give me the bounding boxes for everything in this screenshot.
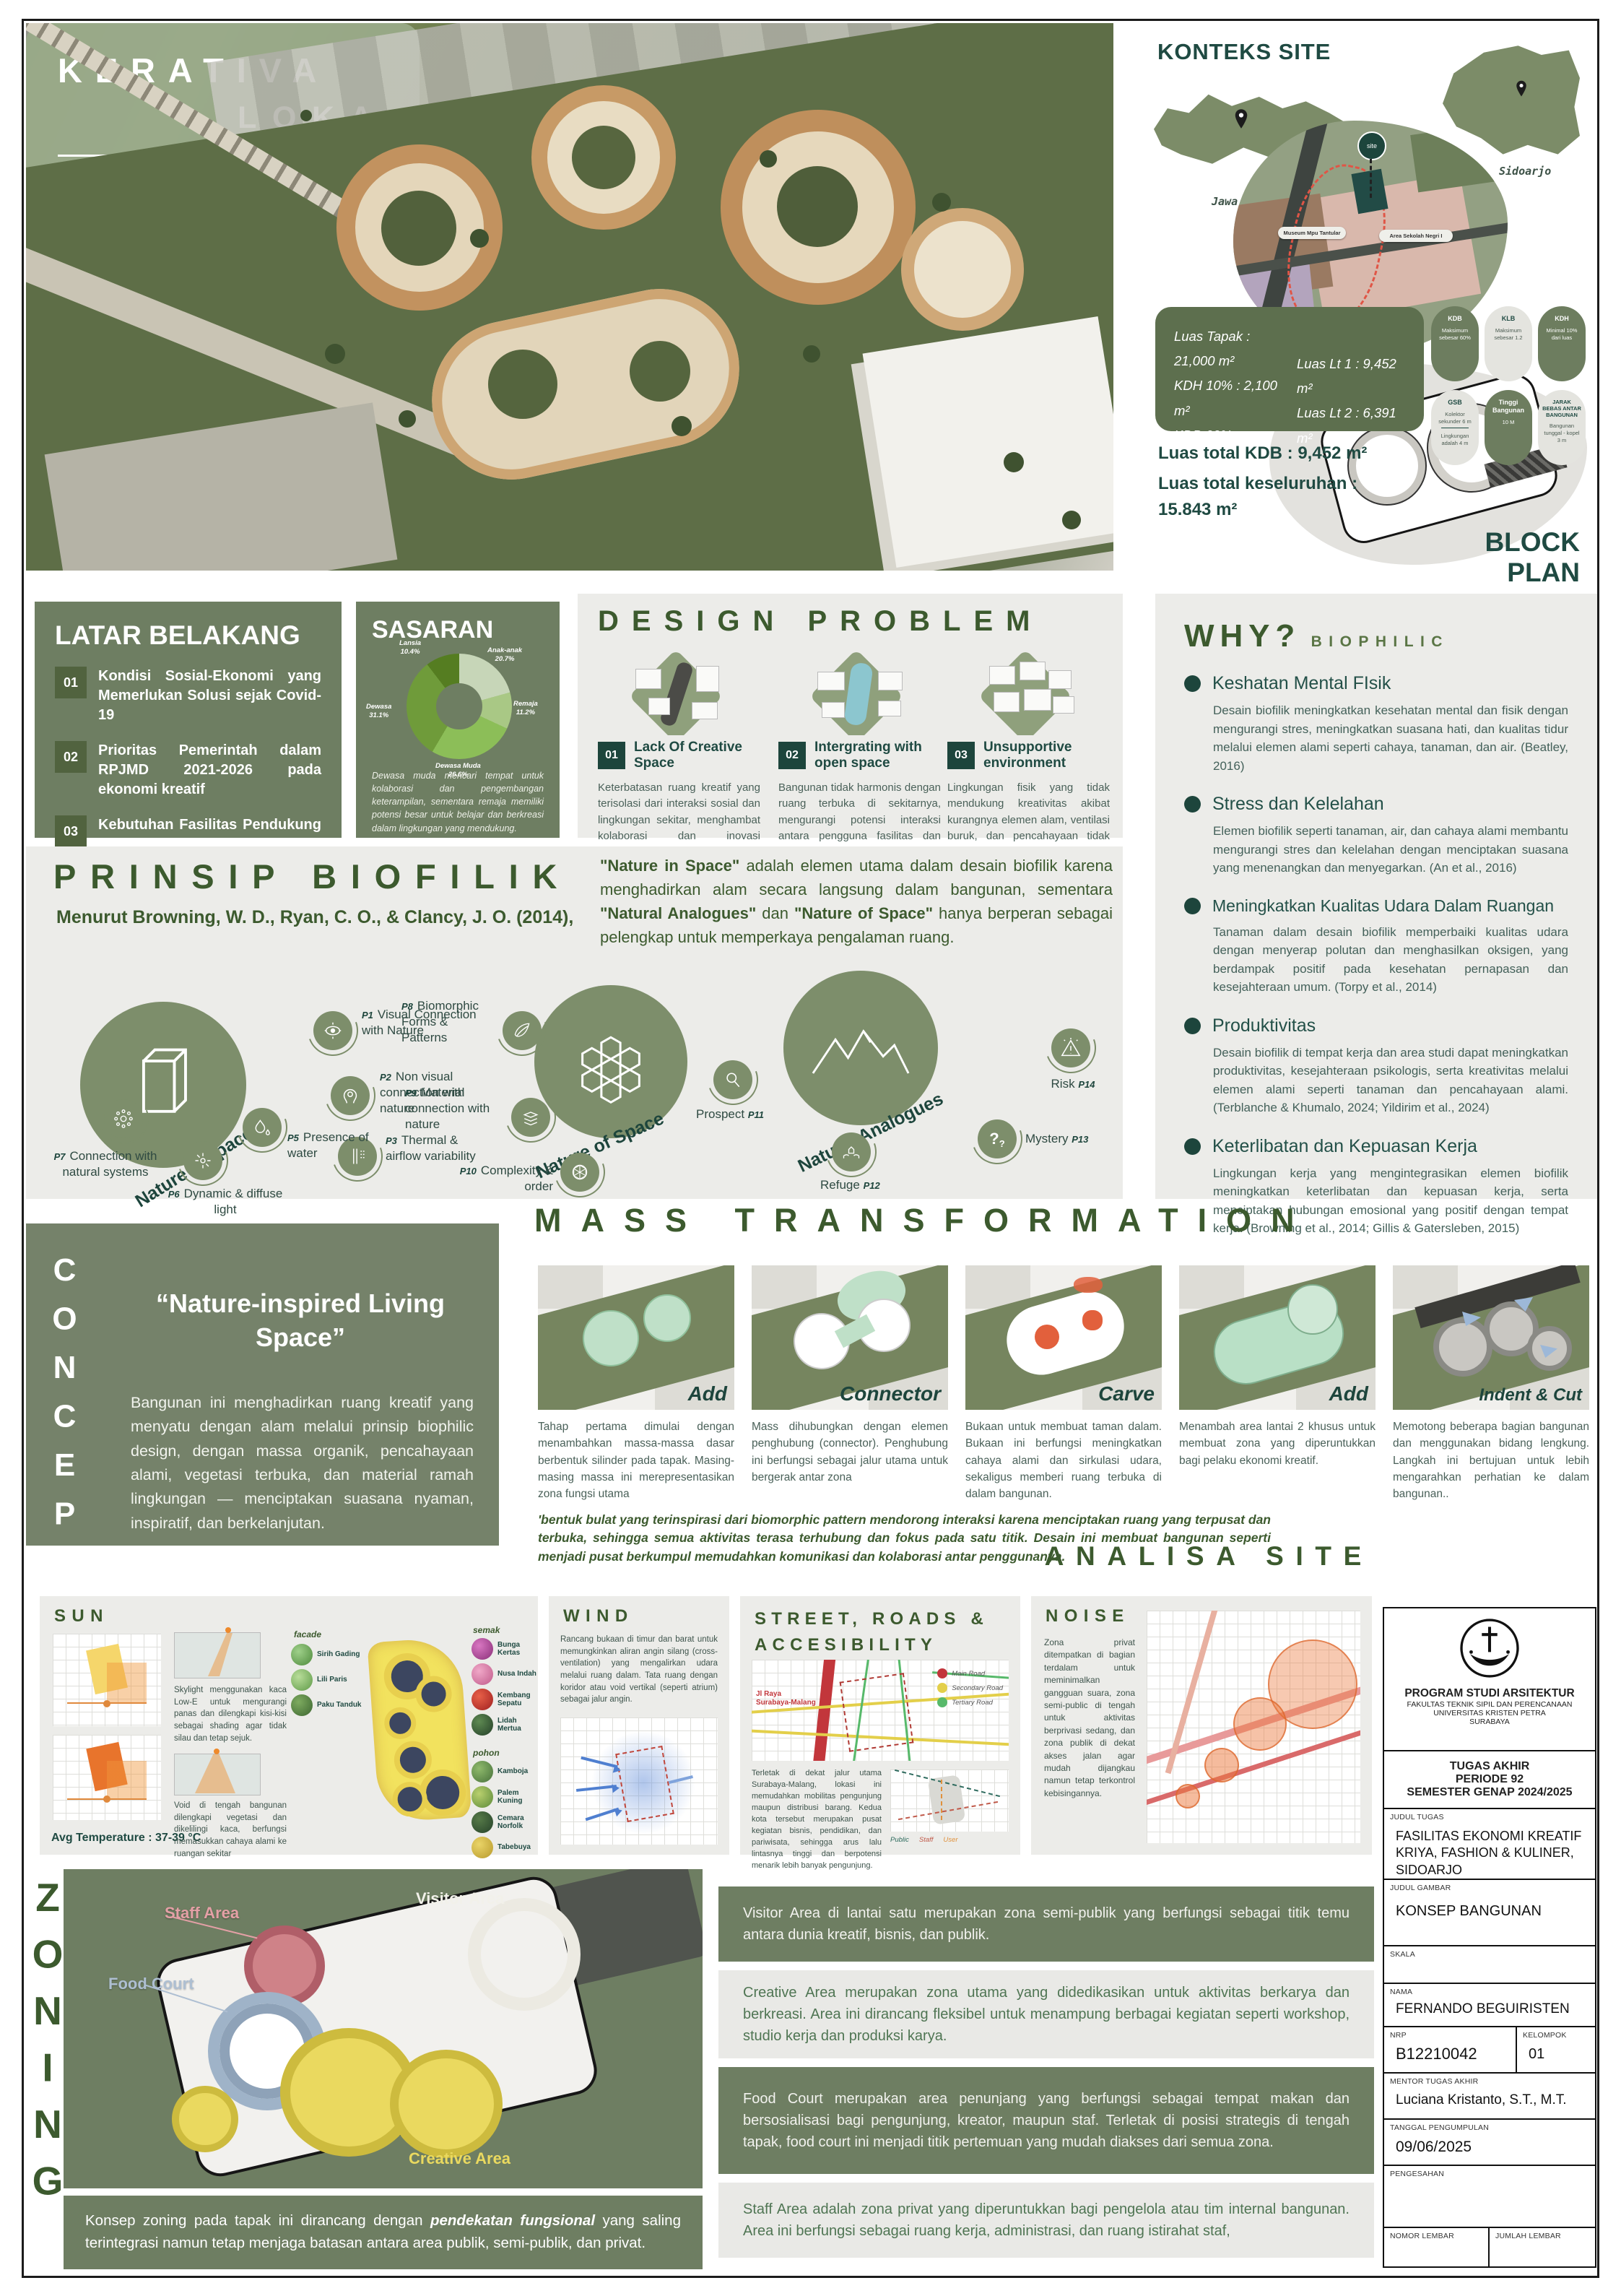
bullet-icon (1184, 675, 1201, 692)
why-item-4: Produktivitas Desain biofilik di tempat … (1184, 1015, 1568, 1117)
why-item-1: Keshatan Mental FIsik Desain biofilik me… (1184, 673, 1568, 775)
sun-title: SUN (54, 1606, 109, 1626)
honeycomb-icon (568, 1018, 654, 1105)
light-beam (204, 1633, 232, 1676)
food-court-label: Food Court (108, 1975, 194, 1993)
donut-hole (436, 683, 482, 729)
tb-university: UNIVERSITAS KRISTEN PETRA (1384, 1709, 1595, 1717)
design-problem-section: DESIGN PROBLEM 01 Lack Of Creative Space… (578, 594, 1123, 838)
stat-luas-tapak: Luas Tapak : 21,000 m² (1174, 324, 1278, 373)
mass-step-5-name: Indent & Cut (1479, 1385, 1582, 1405)
problem-2-num: 02 (778, 742, 806, 769)
problem-1-name: Lack Of Creative Space (634, 740, 760, 771)
latar-belakang-section: LATAR BELAKANG 01 Kondisi Sosial-Ekonomi… (35, 602, 342, 838)
reg-gsb: GSB Kolektor sekunder 6 m Lingkungan ada… (1431, 390, 1479, 465)
mass-step-2-name: Connector (840, 1382, 941, 1405)
bullet-icon (1184, 796, 1201, 813)
wind-panel: WIND Rancang bukaan di timur dan barat u… (549, 1596, 729, 1855)
block-plan-label: BLOCK PLAN (1407, 527, 1580, 588)
tb-header: PROGRAM STUDI ARSITEKTUR FAKULTAS TEKNIK… (1384, 1608, 1595, 1751)
reg-tinggi-code: Tinggi Bangunan (1489, 399, 1528, 415)
problem-3-num: 03 (947, 742, 975, 769)
why-item-3: Meningkatkan Kualitas Udara Dalam Ruanga… (1184, 896, 1568, 997)
staff-area-label: Staff Area (165, 1904, 239, 1923)
round-courtyard-5 (630, 341, 690, 402)
reg-klb-code: KLB (1489, 315, 1528, 323)
sun-dot (225, 1627, 231, 1633)
sasaran-section: SASARAN Lansia10.4% Anak-anak20.7% Remaj… (356, 602, 560, 838)
reg-kdb: KDB Maksimum sebesar 60% (1431, 306, 1479, 381)
bullet-icon (1184, 1018, 1201, 1034)
concept-body: Bangunan ini menghadirkan ruang kreatif … (131, 1391, 474, 1535)
noise-panel: NOISE Zona privat ditempatkan di bagian … (1031, 1596, 1372, 1855)
why-subtitle: BIOPHILIC (1311, 633, 1449, 650)
wind-map (560, 1717, 718, 1845)
sidoarjo-pin-icon (1515, 79, 1528, 98)
zone-row-foodcourt: Food Court merupakan area penunjang yang… (718, 2067, 1374, 2174)
latar-item-1: 01 Kondisi Sosial-Ekonomi yang Memerluka… (55, 667, 321, 725)
stat-lt1: Luas Lt 1 : 9,452 m² (1297, 352, 1405, 401)
stat-kdh: KDH 10% : 2,100 m² (1174, 373, 1278, 423)
tb-faculty: FAKULTAS TEKNIK SIPIL DAN PERENCANAAN (1384, 1700, 1595, 1709)
zone-row-visitor: Visitor Area di lantai satu merupakan zo… (718, 1886, 1374, 1962)
plant-icon (471, 1761, 493, 1782)
plant-icon (291, 1694, 313, 1716)
carve-opening (1074, 1277, 1103, 1293)
street-title: STREET, ROADS & ACCESIBILITY (755, 1606, 1000, 1658)
wind-text: Rancang bukaan di timur dan barat untuk … (560, 1634, 718, 1706)
zone-row-staff: Staff Area adalah zona privat yang diper… (718, 2183, 1374, 2258)
mass-step-3-desc: Bukaan untuk membuat taman dalam. Bukaan… (965, 1418, 1162, 1502)
round-courtyard-3 (777, 166, 858, 247)
total-kdb: Luas total KDB : 9,452 m² (1158, 443, 1367, 464)
access-map (890, 1769, 1009, 1832)
zoning-concept-text: Konsep zoning pada tapak ini dirancang d… (85, 2210, 681, 2255)
tb-task: TUGAS AKHIR PERIODE 92 SEMESTER GENAP 20… (1384, 1751, 1595, 1809)
latar-item-2: 02 Prioritas Pemerintah dalam RPJMD 2021… (55, 741, 321, 800)
site-pin-badge: site (1357, 131, 1386, 160)
tb-nama: NAMA FERNANDO BEGUIRISTEN (1384, 1984, 1595, 2027)
reg-tinggi: Tinggi Bangunan 10 M (1485, 390, 1532, 465)
mass-step-1-desc: Tahap pertama dimulai dengan menambahkan… (538, 1418, 734, 1502)
street-text: Terletak di dekat jalur utama Surabaya-M… (752, 1768, 882, 1871)
jawa-timur-pin-icon (1233, 108, 1249, 130)
problem-2-illustration (778, 650, 941, 735)
concept-quote: “Nature-inspired Living Space” (131, 1287, 470, 1355)
p10-icon (560, 1153, 599, 1192)
mass-transformation-title: MASS TRANSFORMATION (534, 1202, 1314, 1239)
reg-jarak-desc: Bangunan tunggal - kopel 3 m (1542, 423, 1581, 443)
p14-label: Risk P14 (1035, 1076, 1115, 1092)
tertiary-road-dot (937, 1697, 947, 1707)
mass-step-2-desc: Mass dihubungkan dengan elemen penghubun… (752, 1418, 948, 1486)
mass-step-3-image: Carve (965, 1265, 1162, 1410)
white-blocks (863, 316, 1113, 568)
reg-kdh-desc: Minimal 10% dari luas (1542, 327, 1581, 342)
prinsip-subtitle: Menurut Browning, W. D., Ryan, C. O., & … (56, 907, 573, 928)
p14-icon (1051, 1028, 1090, 1067)
site-pin-line (1370, 159, 1372, 198)
petra-university-logo (1459, 1617, 1521, 1679)
pohon-group-label: pohon (473, 1748, 500, 1758)
p8-icon (503, 1011, 542, 1050)
p11-label: Prospect P11 (696, 1106, 797, 1122)
noise-circle-small (1204, 1748, 1239, 1782)
p7-icon (104, 1099, 143, 1138)
mass-step-4-image: Add (1179, 1265, 1376, 1410)
design-problem-title: DESIGN PROBLEM (598, 605, 1103, 638)
plan-ring (393, 1740, 433, 1780)
reg-gsb-desc2: Lingkungan adalah 4 m (1435, 433, 1474, 447)
reg-kdh: KDH Minimal 10% dari luas (1538, 306, 1586, 381)
tb-program: PROGRAM STUDI ARSITEKTUR (1384, 1687, 1595, 1700)
round-courtyard-4 (488, 350, 557, 419)
plant-icon (471, 1811, 493, 1833)
prinsip-title: PRINSIP BIOFILIK (53, 857, 571, 896)
tb-judul-tugas: JUDUL TUGAS FASILITAS EKONOMI KREATIF KR… (1384, 1809, 1595, 1880)
mass-step-4-desc: Menambah area lantai 2 khusus untuk memb… (1179, 1418, 1376, 1469)
problem-3-illustration (947, 650, 1110, 735)
latar-text-2: Prioritas Pemerintah dalam RPJMD 2021-20… (98, 741, 321, 800)
bullet-icon (1184, 898, 1201, 914)
noise-road (1165, 1611, 1221, 1774)
bullet-icon (1184, 1138, 1201, 1155)
creative-zone-b (390, 2050, 503, 2158)
plant-icon (471, 1714, 493, 1736)
reg-klb: KLB Maksimum sebesar 1.2 (1485, 306, 1532, 381)
p8-label: P8Biomorphic Forms & Patterns (401, 998, 495, 1046)
plan-ring (383, 1706, 417, 1740)
mass-step-2-image: Connector (752, 1265, 948, 1410)
sasaran-donut-chart (407, 654, 512, 759)
plant-icon (471, 1638, 493, 1660)
site-stats-box: Luas Tapak : 21,000 m² KDH 10% : 2,100 m… (1155, 307, 1424, 431)
void-text: Void di tengah bangunan dilengkapi veget… (174, 1800, 287, 1860)
total-keseluruhan-label: Luas total keseluruhan : (1158, 474, 1357, 494)
tb-city: SURABAYA (1384, 1717, 1595, 1726)
concept-vertical-title: CONCEPT (46, 1252, 82, 1534)
sasaran-note: Dewasa muda mencari tempat untuk kolabor… (372, 769, 544, 835)
road-label: Jl Raya Surabaya-Malang (756, 1690, 817, 1707)
zoning-diagram-panel: Staff Area Visitor Area Food Court Creat… (64, 1869, 703, 2188)
creative-zone-c (172, 2086, 238, 2152)
light-beam (195, 1754, 235, 1793)
p9-label: P9Material connection with nature (405, 1085, 503, 1132)
wind-arrow-head (612, 1784, 620, 1793)
mass-step-1-image: Add (538, 1265, 734, 1410)
reg-gsb-desc1: Kolektor sekunder 6 m (1435, 411, 1474, 425)
p6-icon (183, 1141, 222, 1180)
sun-map-2 (53, 1735, 161, 1820)
latar-num-2: 02 (55, 741, 87, 773)
tb-pengesahan: PENGESAHAN (1384, 2166, 1595, 2228)
noise-text: Zona privat ditempatkan di bagian terdal… (1044, 1637, 1135, 1800)
plant-icon (471, 1837, 493, 1858)
level2-circle (1287, 1284, 1338, 1335)
why-item-2: Stress dan Kelelahan Elemen biofilik sep… (1184, 794, 1568, 878)
noise-map (1147, 1611, 1360, 1843)
latar-num-1: 01 (55, 667, 87, 698)
street-panel: STREET, ROADS & ACCESIBILITY Jl Raya Sur… (740, 1596, 1020, 1855)
tb-skala: SKALA (1384, 1946, 1595, 1984)
facade-plants: Sirih Gading Lili Paris Paku Tanduk (291, 1644, 372, 1720)
noise-title: NOISE (1046, 1606, 1130, 1626)
p7-label: P7Connection with natural systems (48, 1148, 163, 1180)
mass-step-5-image: Indent & Cut (1393, 1265, 1589, 1410)
seg-lansia: Lansia10.4% (399, 639, 421, 657)
latar-num-3: 03 (55, 815, 87, 847)
mass-circle (643, 1294, 691, 1342)
seg-dewasa: Dewasa31.1% (366, 703, 391, 721)
plant-icon (471, 1786, 493, 1808)
mass-step-1-name: Add (688, 1382, 727, 1405)
sun-dot (214, 1749, 220, 1754)
mass-step-4: Add Menambah area lantai 2 khusus untuk … (1179, 1265, 1376, 1410)
mass-circle (583, 1310, 639, 1366)
semak-group-label: semak (473, 1625, 500, 1635)
p13-icon: ?? (978, 1119, 1017, 1158)
p3-label: P3Thermal & airflow variability (386, 1132, 494, 1164)
problem-3: 03 Unsupportive environment Lingkungan f… (947, 650, 1110, 861)
reg-gsb-divider (1441, 428, 1469, 428)
round-courtyard-1 (381, 191, 456, 266)
void-diagram (174, 1754, 261, 1795)
school-chip: Area Sekolah Negri I (1379, 230, 1453, 242)
reg-jarak-code: JARAK BEBAS ANTAR BANGUNAN (1542, 399, 1581, 418)
carve-opening (1082, 1310, 1103, 1330)
why-title: WHY? (1184, 618, 1300, 654)
mass-step-2: Connector Mass dihubungkan dengan elemen… (752, 1265, 948, 1410)
hero-render: KERATIVA LOKA FASILITAS EKONOMI KREATIF … (26, 23, 1113, 571)
reg-gsb-code: GSB (1435, 399, 1474, 407)
main-road-dot (937, 1668, 947, 1678)
semak-plants: Bunga Kertas Nusa Indah Kembang Sepatu L… (471, 1638, 536, 1739)
tb-mentor: MENTOR TUGAS AKHIR Luciana Kristanto, S.… (1384, 2074, 1595, 2120)
secondary-road-dot (937, 1683, 947, 1693)
problem-1-num: 01 (598, 742, 625, 769)
user-route (941, 1780, 942, 1820)
access-legend: Public Staff User (890, 1836, 1013, 1844)
p2-icon (331, 1076, 370, 1115)
konteks-site-section: KONTEKS SITE Jawa Timur Sidoarjo site Mu… (1125, 23, 1597, 571)
visitor-area-label: Visitor Area (416, 1889, 504, 1908)
p13-label: Mystery P13 (1025, 1131, 1119, 1147)
wind-title: WIND (563, 1606, 634, 1626)
prinsip-intro: "Nature in Space" adalah elemen utama da… (600, 854, 1113, 949)
plant-icon (471, 1689, 493, 1710)
sun-map-1 (53, 1634, 161, 1726)
visitor-zone (468, 1898, 581, 2011)
mass-step-3: Carve Bukaan untuk membuat taman dalam. … (965, 1265, 1162, 1410)
seg-remaja: Remaja11.2% (513, 700, 538, 718)
latar-title: LATAR BELAKANG (55, 620, 321, 651)
p12-label: Refuge P12 (820, 1177, 914, 1193)
tb-lembar: NOMOR LEMBAR JUMLAH LEMBAR (1384, 2228, 1595, 2266)
p11-icon (713, 1060, 752, 1099)
trees (300, 110, 312, 121)
problem-3-name: Unsupportive environment (983, 740, 1110, 771)
mountains-icon (810, 1015, 911, 1080)
mass-step-3-name: Carve (1098, 1382, 1155, 1405)
mass-step-1: Add Tahap pertama dimulai dengan menamba… (538, 1265, 734, 1410)
problem-2-name: Intergrating with open space (814, 740, 941, 771)
mass-step-5-desc: Memotong beberapa bagian bangunan dan me… (1393, 1418, 1589, 1502)
sun-dot (103, 1795, 110, 1803)
p6-label: P6Dynamic & diffuse light (168, 1186, 283, 1218)
creative-area-label: Creative Area (409, 2149, 510, 2168)
pohon-plants: Kamboja Palem Kuning Cemara Norfolk Tabe… (471, 1761, 536, 1862)
plant-icon (471, 1663, 493, 1685)
latar-text-1: Kondisi Sosial-Ekonomi yang Memerlukan S… (98, 667, 321, 725)
tb-nrp-kelompok: NRP B12210042 KELOMPOK 01 (1384, 2027, 1595, 2074)
prinsip-biofilik-section: PRINSIP BIOFILIK Menurut Browning, W. D.… (26, 846, 1123, 1199)
sasaran-title: SASARAN (372, 616, 544, 644)
p5-label: P5Presence of water (287, 1130, 381, 1161)
carve-opening (1035, 1325, 1059, 1349)
problem-2: 02 Intergrating with open space Bangunan… (778, 650, 941, 861)
road-legend: Main Road Secondary Road Tertiary Road (937, 1668, 1003, 1712)
zone-row-creative: Creative Area merupakan zona utama yang … (718, 1970, 1374, 2058)
plan-ring (414, 1675, 453, 1713)
problem-1: 01 Lack Of Creative Space Keterbatasan r… (598, 650, 760, 861)
street-site-outline (840, 1673, 914, 1752)
noise-circle-small (1175, 1784, 1200, 1808)
reg-tinggi-desc: 10 M (1489, 419, 1528, 426)
street-map: Jl Raya Surabaya-Malang Main Road Second… (752, 1660, 1009, 1761)
sun-roof-plan (367, 1637, 471, 1823)
round-courtyard-2 (572, 126, 635, 189)
sun-dot (103, 1700, 110, 1707)
reg-jarak: JARAK BEBAS ANTAR BANGUNAN Bangunan tung… (1538, 390, 1586, 465)
main-road (812, 1660, 836, 1761)
p9-icon (511, 1098, 550, 1137)
nature-of-space-circle (534, 985, 687, 1138)
reg-klb-desc: Maksimum sebesar 1.2 (1489, 327, 1528, 342)
sun-panel: SUN Avg Temperature : 37-39 °C Skylight … (40, 1596, 538, 1855)
mass-step-4-name: Add (1329, 1382, 1368, 1405)
problem-1-illustration (598, 650, 760, 735)
concept-section: CONCEPT “Nature-inspired Living Space” B… (26, 1223, 499, 1546)
museum-chip: Museum Mpu Tantular (1278, 227, 1346, 239)
sun-path-fan (67, 1663, 147, 1704)
sun-path-fan (67, 1761, 147, 1800)
total-keseluruhan-value: 15.843 m² (1158, 500, 1237, 520)
konteks-title: KONTEKS SITE (1157, 39, 1331, 65)
tb-tanggal: TANGGAL PENGUMPULAN 09/06/2025 (1384, 2120, 1595, 2166)
analisa-site-header: ANALISA SITE (1033, 1541, 1373, 1572)
reg-kdb-code: KDB (1435, 315, 1474, 323)
plant-icon (291, 1644, 313, 1665)
green-zone (1410, 121, 1508, 193)
p12-icon (832, 1132, 871, 1171)
why-biophilic-section: WHY? BIOPHILIC Keshatan Mental FIsik Des… (1155, 594, 1597, 1199)
zoning-concept-box: Konsep zoning pada tapak ini dirancang d… (64, 2196, 703, 2269)
p5-icon (243, 1108, 282, 1147)
skylight-text: Skylight menggunakan kaca Low-E untuk me… (174, 1684, 287, 1744)
tb-judul-gambar: JUDUL GAMBAR KONSEP BANGUNAN (1384, 1880, 1595, 1946)
p1-icon (313, 1011, 352, 1050)
mass-step-5: Indent & Cut Memotong beberapa bagian ba… (1393, 1265, 1589, 1410)
plant-icon (291, 1669, 313, 1691)
reg-kdb-desc: Maksimum sebesar 60% (1435, 327, 1474, 342)
facade-group-label: facade (294, 1629, 321, 1639)
noise-circle-mid (1233, 1697, 1287, 1751)
skylight-diagram (174, 1632, 261, 1678)
seg-anak: Anak-anak20.7% (487, 646, 522, 664)
title-block: PROGRAM STUDI ARSITEKTUR FAKULTAS TEKNIK… (1383, 1607, 1596, 2268)
poster-canvas: KERATIVA LOKA FASILITAS EKONOMI KREATIF … (0, 0, 1621, 2296)
p10-label: P10Complexity & order (452, 1163, 553, 1195)
reg-kdh-code: KDH (1542, 315, 1581, 323)
round-building-4 (901, 208, 1024, 331)
